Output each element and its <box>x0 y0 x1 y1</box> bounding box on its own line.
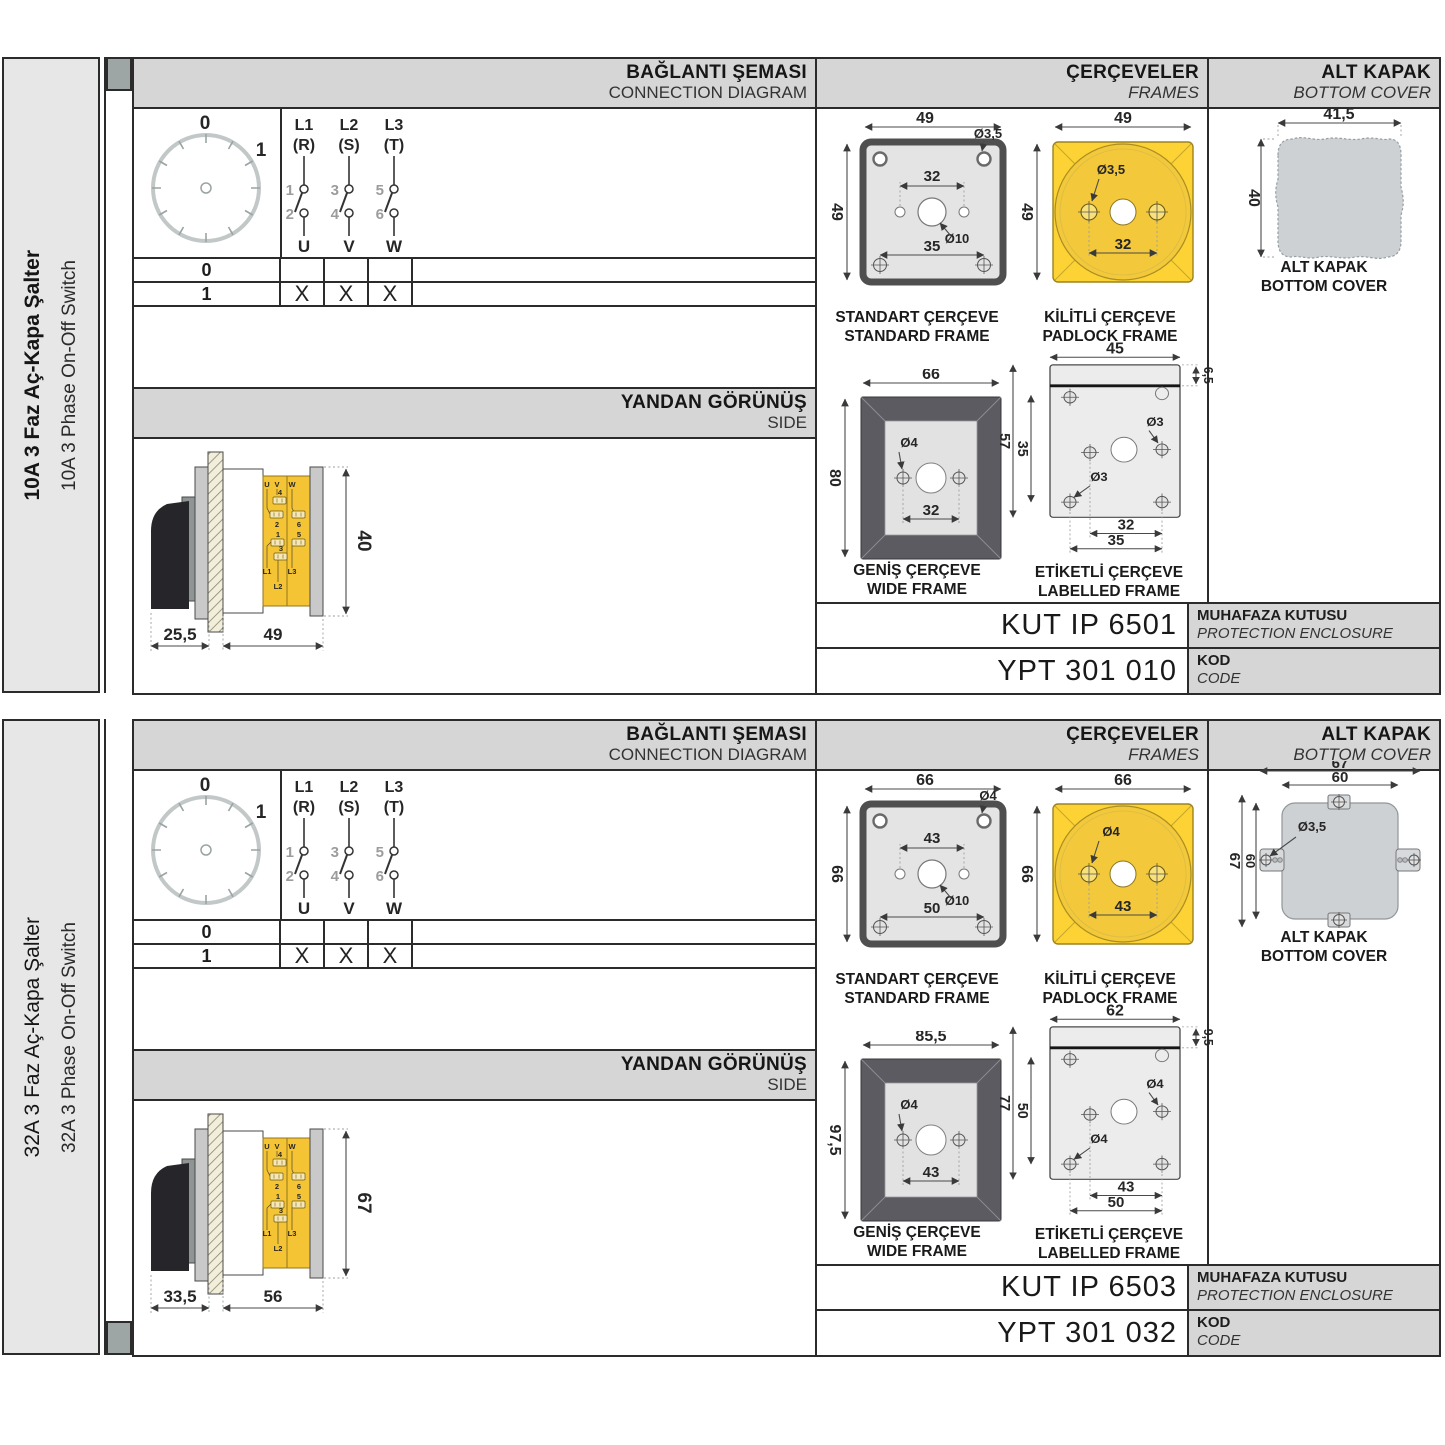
rotary-dial: 0 1 <box>152 775 267 904</box>
product-section: 10A 3 Faz Aç-Kapa Şalter 10A 3 Phase On-… <box>0 57 1445 697</box>
dia-label-a: Ø4 <box>1146 1077 1163 1091</box>
contact-cell <box>325 259 369 281</box>
switching-table: 0 1 X X X <box>134 257 815 307</box>
labelled-frame-drawing: 62 9,5 77 50 Ø4 Ø4 43 50 <box>995 1004 1217 1226</box>
standard-frame-label-tr: STANDART ÇERÇEVE <box>817 971 1017 990</box>
label-u: U <box>264 1142 269 1151</box>
dim-hole-spacing: 43 <box>1115 898 1132 915</box>
product-title-en: 10A 3 Phase On-Off Switch <box>59 260 81 491</box>
pole-output-label: W <box>386 899 403 918</box>
side-header-en: SIDE <box>134 1076 807 1095</box>
dial-position-0: 0 <box>200 775 211 796</box>
empty-cell <box>413 945 815 967</box>
dim-height: 40 <box>353 530 374 551</box>
dia-corner-label: Ø3,5 <box>974 126 1002 141</box>
connection-header-en: CONNECTION DIAGRAM <box>134 84 807 103</box>
binder-tab <box>106 1321 132 1355</box>
dim-width: 49 <box>1114 112 1132 127</box>
terminal-number-top: 1 <box>286 844 294 861</box>
enclosure-caption-tr: MUHAFAZA KUTUSU <box>1197 607 1439 625</box>
label-u: U <box>264 480 269 489</box>
panel-plate <box>208 452 223 632</box>
cover-header-tr: ALT KAPAK <box>1209 62 1431 84</box>
handle <box>151 1163 189 1271</box>
frames-header-tr: ÇERÇEVELER <box>817 724 1199 746</box>
dim-height: 80 <box>826 469 843 487</box>
dim-height: 49 <box>1018 203 1035 221</box>
pole-output-label: W <box>386 237 403 256</box>
dia-label-b: Ø3 <box>1090 470 1107 484</box>
enclosure-caption-tr: MUHAFAZA KUTUSU <box>1197 1269 1439 1287</box>
label-l2: L2 <box>274 1244 283 1253</box>
codes-block: KUT IP 6503 MUHAFAZA KUTUSU PROTECTION E… <box>817 1264 1439 1355</box>
frames-column: ÇERÇEVELER FRAMES 66 Ø4 66 <box>817 721 1209 1264</box>
standard-frame-label-en: STANDARD FRAME <box>817 990 1017 1009</box>
contact-cell <box>281 921 325 943</box>
standard-frame-label: STANDART ÇERÇEVE STANDARD FRAME <box>817 309 1017 346</box>
dim-lower-spacing: 35 <box>924 238 941 255</box>
dim-bottom-2: 35 <box>1108 533 1125 549</box>
terminal-number-top: 5 <box>376 182 384 199</box>
padlock-frame-label: KİLİTLİ ÇERÇEVE PADLOCK FRAME <box>1015 971 1205 1008</box>
code-caption: KOD CODE <box>1187 1311 1439 1355</box>
terminal-number-bottom: 4 <box>331 206 340 223</box>
padlock-frame-label-tr: KİLİTLİ ÇERÇEVE <box>1015 309 1205 328</box>
dim-body-depth: 49 <box>264 625 283 644</box>
pole-phase-label: (R) <box>293 799 315 816</box>
pole-line-label: L2 <box>340 779 359 796</box>
contact-cell: X <box>369 283 413 305</box>
product-code: YPT 301 032 <box>817 1311 1187 1355</box>
enclosure-code: KUT IP 6501 <box>817 604 1187 647</box>
connection-diagram: 0 1 L1 (R) 1 2 U L2 (S) <box>134 109 815 257</box>
label-1: 1 <box>276 530 280 539</box>
frames-header-en: FRAMES <box>817 746 1199 765</box>
connection-header: BAĞLANTI ŞEMASI CONNECTION DIAGRAM <box>134 59 815 109</box>
dim-width: 66 <box>922 369 940 383</box>
position-cell: 0 <box>134 259 281 281</box>
pole-line-label: L1 <box>295 117 314 134</box>
terminal-number-top: 3 <box>331 844 339 861</box>
cover-label-en: BOTTOM COVER <box>1209 278 1439 297</box>
connection-diagram: 0 1 L1 (R) 1 2 U L2 (S) <box>134 771 815 919</box>
side-view-header: YANDAN GÖRÜNÜŞ SIDE <box>134 387 815 439</box>
labelled-frame-drawing: 45 6,5 57 35 Ø3 Ø3 32 35 <box>995 342 1217 564</box>
contact-cell <box>369 259 413 281</box>
binder-strip <box>104 719 132 1355</box>
dial-position-0: 0 <box>200 113 211 134</box>
dim-height-outer: 67 <box>1226 853 1243 870</box>
enclosure-caption: MUHAFAZA KUTUSU PROTECTION ENCLOSURE <box>1187 1266 1439 1309</box>
wide-frame-label: GENİŞ ÇERÇEVE WIDE FRAME <box>822 1224 1012 1261</box>
pole-3: L3 (T) 5 6 W <box>376 117 405 256</box>
dim-bottom-2: 50 <box>1108 1195 1125 1211</box>
labelled-frame-label: ETİKETLİ ÇERÇEVE LABELLED FRAME <box>1013 564 1205 601</box>
pole-phase-label: (T) <box>384 137 404 154</box>
table-row: 1 X X X <box>134 283 815 307</box>
table-row: 1 X X X <box>134 945 815 969</box>
pole-output-label: U <box>298 899 310 918</box>
product-title-tr: 32A 3 Faz Aç-Kapa Şalter <box>21 917 45 1157</box>
dia-label: Ø3,5 <box>1298 819 1326 834</box>
pole-phase-label: (S) <box>338 137 359 154</box>
product-section: 32A 3 Faz Aç-Kapa Şalter 32A 3 Phase On-… <box>0 719 1445 1359</box>
wide-frame-label-tr: GENİŞ ÇERÇEVE <box>822 1224 1012 1243</box>
dim-handle-depth: 33,5 <box>163 1287 196 1306</box>
enclosure-caption: MUHAFAZA KUTUSU PROTECTION ENCLOSURE <box>1187 604 1439 647</box>
dim-hole-spacing: 32 <box>924 168 941 185</box>
pole-1: L1 (R) 1 2 U <box>286 117 315 256</box>
pole-output-label: U <box>298 237 310 256</box>
contact-cell: X <box>281 945 325 967</box>
enclosure-caption-en: PROTECTION ENCLOSURE <box>1197 625 1439 643</box>
bottom-cover-drawing: 41,5 40 <box>1231 109 1421 284</box>
dial-position-1: 1 <box>256 802 267 823</box>
terminal-number-top: 1 <box>286 182 294 199</box>
pole-line-label: L2 <box>340 117 359 134</box>
cover-column: ALT KAPAK BOTTOM COVER 67 60 67 <box>1209 721 1439 1264</box>
labelled-frame-label-tr: ETİKETLİ ÇERÇEVE <box>1013 564 1205 583</box>
pole-3: L3 (T) 5 6 W <box>376 779 405 918</box>
connection-column: BAĞLANTI ŞEMASI CONNECTION DIAGRAM 0 1 L… <box>134 59 817 693</box>
panel-plate <box>208 1114 223 1294</box>
dim-width: 45 <box>1106 342 1124 357</box>
code-caption-tr: KOD <box>1197 652 1439 670</box>
dim-width-inner: 60 <box>1332 769 1349 786</box>
label-1: 1 <box>276 1192 280 1201</box>
dia-label: Ø4 <box>1102 824 1120 839</box>
side-view-header: YANDAN GÖRÜNÜŞ SIDE <box>134 1049 815 1101</box>
dim-hole-spacing: 32 <box>923 502 940 519</box>
frames-header: ÇERÇEVELER FRAMES <box>817 721 1207 771</box>
mount-tab-right <box>1396 849 1421 871</box>
wide-frame-drawing: Ø4 32 66 80 <box>825 369 1015 579</box>
dim-width: 66 <box>1114 774 1132 789</box>
contact-cell <box>325 921 369 943</box>
code-caption-tr: KOD <box>1197 1314 1439 1332</box>
terminal-number-bottom: 6 <box>376 868 384 885</box>
dim-width: 49 <box>916 112 934 127</box>
contact-cell <box>369 921 413 943</box>
wide-frame-drawing: Ø4 43 85,5 97,5 <box>825 1031 1015 1241</box>
padlock-frame-label-tr: KİLİTLİ ÇERÇEVE <box>1015 971 1205 990</box>
label-2: 2 <box>275 520 279 529</box>
empty-cell <box>413 283 815 305</box>
code-caption: KOD CODE <box>1187 649 1439 693</box>
empty-cell <box>413 259 815 281</box>
mount-tab-left <box>1259 849 1284 871</box>
padlock-frame-label: KİLİTLİ ÇERÇEVE PADLOCK FRAME <box>1015 309 1205 346</box>
pole-phase-label: (R) <box>293 137 315 154</box>
padlock-frame-drawing: Ø3,5 32 49 49 <box>1015 112 1205 317</box>
standard-frame-label: STANDART ÇERÇEVE STANDARD FRAME <box>817 971 1017 1008</box>
cover-label: ALT KAPAK BOTTOM COVER <box>1209 929 1439 966</box>
pole-line-label: L3 <box>385 779 404 796</box>
cover-label-tr: ALT KAPAK <box>1209 929 1439 948</box>
cover-label-tr: ALT KAPAK <box>1209 259 1439 278</box>
padlock-frame-drawing: Ø4 43 66 66 <box>1015 774 1205 979</box>
cover-header: ALT KAPAK BOTTOM COVER <box>1209 59 1439 109</box>
label-w: W <box>288 480 296 489</box>
pole-output-label: V <box>343 899 355 918</box>
code-row: YPT 301 032 KOD CODE <box>817 1311 1439 1355</box>
terminal-number-bottom: 2 <box>286 868 294 885</box>
dim-width: 66 <box>916 774 934 789</box>
frames-header-en: FRAMES <box>817 84 1199 103</box>
standard-frame-label-en: STANDARD FRAME <box>817 328 1017 347</box>
label-w: W <box>288 1142 296 1151</box>
standard-frame-drawing: 66 Ø4 66 43 Ø10 50 <box>825 774 1015 979</box>
dim-height: 97,5 <box>826 1124 843 1155</box>
side-view-drawing: U V W 4 2 1 3 6 5 L1 L2 L3 <box>134 439 815 691</box>
contact-cell: X <box>369 945 413 967</box>
contact-cell: X <box>325 945 369 967</box>
standard-frame-drawing: 49 Ø3,5 49 32 Ø10 35 <box>825 112 1015 317</box>
binder-strip <box>104 57 132 693</box>
dim-height: 67 <box>353 1192 374 1213</box>
cover-label-en: BOTTOM COVER <box>1209 948 1439 967</box>
dim-height: 66 <box>828 865 845 883</box>
enclosure-caption-en: PROTECTION ENCLOSURE <box>1197 1287 1439 1305</box>
cover-column: ALT KAPAK BOTTOM COVER 41,5 40 <box>1209 59 1439 602</box>
cover-outline <box>1276 138 1404 259</box>
side-header-tr: YANDAN GÖRÜNÜŞ <box>134 1054 807 1076</box>
dim-width: 85,5 <box>915 1031 946 1045</box>
pole-output-label: V <box>343 237 355 256</box>
side-header-tr: YANDAN GÖRÜNÜŞ <box>134 392 807 414</box>
dim-width: 41,5 <box>1323 109 1354 123</box>
table-row: 0 <box>134 259 815 283</box>
dim-width: 62 <box>1106 1004 1124 1019</box>
label-5: 5 <box>297 1192 301 1201</box>
standard-frame-label-tr: STANDART ÇERÇEVE <box>817 309 1017 328</box>
wide-frame-label-en: WIDE FRAME <box>822 581 1012 600</box>
frames-header-tr: ÇERÇEVELER <box>817 62 1199 84</box>
binder-tab <box>106 57 132 91</box>
dia-label-a: Ø3 <box>1146 415 1163 429</box>
code-caption-en: CODE <box>1197 1332 1439 1350</box>
datasheet-panel: BAĞLANTI ŞEMASI CONNECTION DIAGRAM 0 1 L… <box>132 57 1441 695</box>
dim-handle-depth: 25,5 <box>163 625 196 644</box>
dim-height: 49 <box>828 203 845 221</box>
side-header-en: SIDE <box>134 414 807 433</box>
bottom-cover-drawing: 67 60 67 60 <box>1224 761 1424 941</box>
contact-cell: X <box>325 283 369 305</box>
product-side-label: 10A 3 Faz Aç-Kapa Şalter 10A 3 Phase On-… <box>2 57 100 693</box>
dim-hole-spacing: 43 <box>923 1164 940 1181</box>
mount-tab-bottom <box>1328 912 1350 928</box>
terminal-number-top: 5 <box>376 844 384 861</box>
pole-phase-label: (T) <box>384 799 404 816</box>
dim-height: 77 <box>996 1095 1012 1111</box>
mount-tab-top <box>1328 794 1350 810</box>
code-row: YPT 301 010 KOD CODE <box>817 649 1439 693</box>
connection-header-en: CONNECTION DIAGRAM <box>134 746 807 765</box>
labelled-frame-label-tr: ETİKETLİ ÇERÇEVE <box>1013 1226 1205 1245</box>
label-5: 5 <box>297 530 301 539</box>
label-6: 6 <box>297 520 301 529</box>
label-l1: L1 <box>263 567 272 576</box>
frames-column: ÇERÇEVELER FRAMES 49 Ø3,5 49 <box>817 59 1209 602</box>
pole-2: L2 (S) 3 4 V <box>331 117 360 256</box>
label-l3: L3 <box>288 1229 297 1238</box>
dia-label: Ø4 <box>900 1097 918 1112</box>
cover-header-tr: ALT KAPAK <box>1209 724 1431 746</box>
connection-column: BAĞLANTI ŞEMASI CONNECTION DIAGRAM 0 1 L… <box>134 721 817 1355</box>
enclosure-row: KUT IP 6503 MUHAFAZA KUTUSU PROTECTION E… <box>817 1266 1439 1311</box>
terminal-number-bottom: 2 <box>286 206 294 223</box>
contact-cell: X <box>281 283 325 305</box>
wide-frame-label-tr: GENİŞ ÇERÇEVE <box>822 562 1012 581</box>
dia-label-b: Ø4 <box>1090 1132 1107 1146</box>
switching-table: 0 1 X X X <box>134 919 815 969</box>
enclosure-code: KUT IP 6503 <box>817 1266 1187 1309</box>
dim-inner-height: 50 <box>1014 1103 1030 1119</box>
position-cell: 0 <box>134 921 281 943</box>
label-2: 2 <box>275 1182 279 1191</box>
dim-height: 57 <box>996 433 1012 449</box>
dim-body-depth: 56 <box>264 1287 283 1306</box>
pole-line-label: L1 <box>295 779 314 796</box>
dim-lower-spacing: 50 <box>924 900 941 917</box>
dim-height-inner: 60 <box>1243 854 1258 868</box>
frames-header: ÇERÇEVELER FRAMES <box>817 59 1207 109</box>
side-view-drawing: U V W 4 2 1 3 6 5 L1 L2 L3 <box>134 1101 815 1353</box>
label-6: 6 <box>297 1182 301 1191</box>
dim-height: 66 <box>1018 865 1035 883</box>
dim-hole-spacing: 43 <box>924 830 941 847</box>
labelled-frame-label: ETİKETLİ ÇERÇEVE LABELLED FRAME <box>1013 1226 1205 1263</box>
empty-cell <box>413 921 815 943</box>
position-cell: 1 <box>134 945 281 967</box>
dial-position-1: 1 <box>256 140 267 161</box>
pole-2: L2 (S) 3 4 V <box>331 779 360 918</box>
rotary-dial: 0 1 <box>152 113 267 242</box>
codes-block: KUT IP 6501 MUHAFAZA KUTUSU PROTECTION E… <box>817 602 1439 693</box>
terminal-number-bottom: 6 <box>376 206 384 223</box>
dim-hole-spacing: 32 <box>1115 236 1132 253</box>
label-l1: L1 <box>263 1229 272 1238</box>
dia-corner-label: Ø4 <box>979 788 997 803</box>
position-cell: 1 <box>134 283 281 305</box>
pole-phase-label: (S) <box>338 799 359 816</box>
dim-bottom-1: 32 <box>1118 518 1135 534</box>
product-title-tr: 10A 3 Faz Aç-Kapa Şalter <box>21 250 45 501</box>
datasheet-panel: BAĞLANTI ŞEMASI CONNECTION DIAGRAM 0 1 L… <box>132 719 1441 1357</box>
enclosure-row: KUT IP 6501 MUHAFAZA KUTUSU PROTECTION E… <box>817 604 1439 649</box>
table-row: 0 <box>134 921 815 945</box>
label-l3: L3 <box>288 567 297 576</box>
connection-header-tr: BAĞLANTI ŞEMASI <box>134 724 807 746</box>
dia-label: Ø4 <box>900 435 918 450</box>
terminal-number-bottom: 4 <box>331 868 340 885</box>
pole-line-label: L3 <box>385 117 404 134</box>
dim-height: 40 <box>1245 189 1262 207</box>
product-side-label: 32A 3 Faz Aç-Kapa Şalter 32A 3 Phase On-… <box>2 719 100 1355</box>
dim-inner-height: 35 <box>1014 441 1030 457</box>
product-title-en: 32A 3 Phase On-Off Switch <box>59 922 81 1153</box>
wide-frame-label: GENİŞ ÇERÇEVE WIDE FRAME <box>822 562 1012 599</box>
product-code: YPT 301 010 <box>817 649 1187 693</box>
dia-label: Ø3,5 <box>1097 162 1125 177</box>
dim-bottom-1: 43 <box>1118 1180 1135 1196</box>
labelled-frame-label-en: LABELLED FRAME <box>1013 1245 1205 1264</box>
code-caption-en: CODE <box>1197 670 1439 688</box>
handle <box>151 501 189 609</box>
contact-cell <box>281 259 325 281</box>
labelled-frame-label-en: LABELLED FRAME <box>1013 583 1205 602</box>
pole-1: L1 (R) 1 2 U <box>286 779 315 918</box>
connection-header: BAĞLANTI ŞEMASI CONNECTION DIAGRAM <box>134 721 815 771</box>
wide-frame-label-en: WIDE FRAME <box>822 1243 1012 1262</box>
label-l2: L2 <box>274 582 283 591</box>
cover-header-en: BOTTOM COVER <box>1209 84 1431 103</box>
terminal-number-top: 3 <box>331 182 339 199</box>
cover-label: ALT KAPAK BOTTOM COVER <box>1209 259 1439 296</box>
connection-header-tr: BAĞLANTI ŞEMASI <box>134 62 807 84</box>
